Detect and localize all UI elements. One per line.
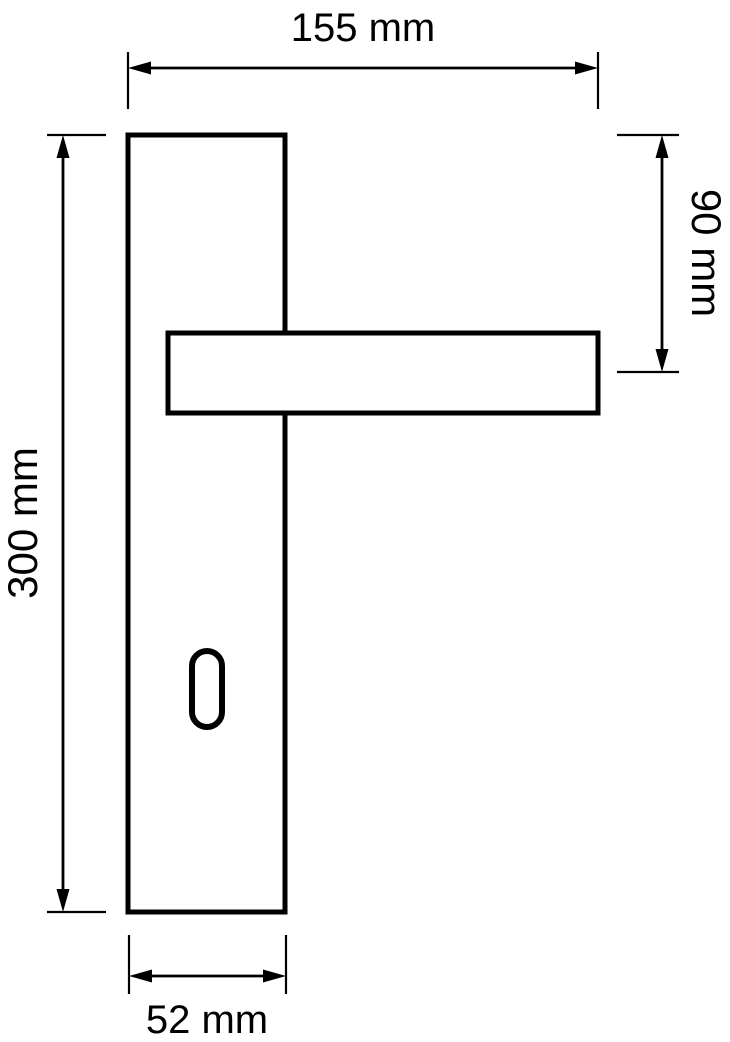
arrow-left-icon bbox=[129, 970, 152, 983]
lever-handle bbox=[168, 333, 598, 413]
technical-drawing-page: 155 mm 300 mm 90 mm 52 mm bbox=[0, 0, 730, 1042]
dimension-plate-width: 52 mm bbox=[129, 935, 286, 1042]
dimension-overall-width: 155 mm bbox=[128, 6, 598, 109]
arrow-left-icon bbox=[128, 62, 151, 75]
dim-overall-width-label: 155 mm bbox=[291, 6, 436, 50]
door-handle-outline bbox=[128, 135, 598, 912]
dimension-handle-axis-offset: 90 mm bbox=[617, 135, 730, 372]
backplate bbox=[128, 135, 285, 912]
dimension-plate-height: 300 mm bbox=[0, 135, 106, 912]
arrow-down-icon bbox=[57, 889, 70, 912]
dim-plate-height-label: 300 mm bbox=[0, 447, 46, 599]
arrow-right-icon bbox=[263, 970, 286, 983]
door-handle-dimension-drawing: 155 mm 300 mm 90 mm 52 mm bbox=[0, 0, 730, 1042]
arrow-right-icon bbox=[575, 62, 598, 75]
dim-handle-offset-label: 90 mm bbox=[683, 189, 730, 317]
arrow-up-icon bbox=[656, 135, 669, 158]
arrow-down-icon bbox=[656, 349, 669, 372]
keyhole bbox=[192, 651, 222, 727]
arrow-up-icon bbox=[57, 135, 70, 158]
dim-plate-width-label: 52 mm bbox=[146, 998, 268, 1042]
